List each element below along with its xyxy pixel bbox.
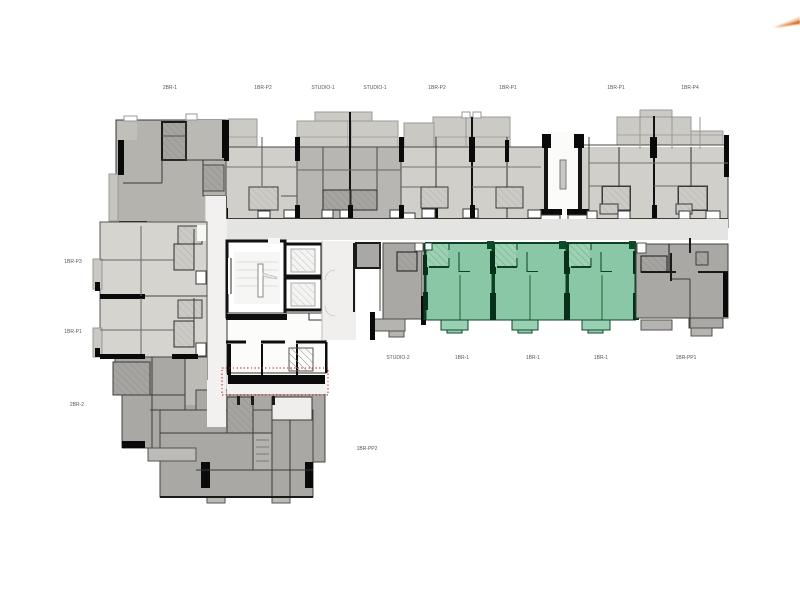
svg-text:1BR-1: 1BR-1	[455, 355, 469, 361]
svg-text:1BR-P3: 1BR-P3	[64, 259, 82, 265]
svg-text:STUDIO-2: STUDIO-2	[386, 355, 410, 361]
svg-text:1BR-P1: 1BR-P1	[64, 329, 82, 335]
svg-text:1BR-1: 1BR-1	[594, 355, 608, 361]
svg-text:1BR-PP1: 1BR-PP1	[676, 355, 697, 361]
svg-text:1BR-P1: 1BR-P1	[499, 85, 517, 91]
svg-text:STUDIO-1: STUDIO-1	[363, 85, 387, 91]
svg-text:2BR-2: 2BR-2	[70, 402, 84, 408]
svg-text:STUDIO-1: STUDIO-1	[311, 85, 335, 91]
svg-text:1BR-PP2: 1BR-PP2	[357, 446, 378, 452]
svg-text:1BR-P2: 1BR-P2	[428, 85, 446, 91]
svg-text:1BR-P1: 1BR-P1	[607, 85, 625, 91]
svg-text:1BR-P2: 1BR-P2	[254, 85, 272, 91]
svg-text:1BR-1: 1BR-1	[526, 355, 540, 361]
svg-text:2BR-1: 2BR-1	[163, 85, 177, 91]
svg-text:1BR-P4: 1BR-P4	[681, 85, 699, 91]
